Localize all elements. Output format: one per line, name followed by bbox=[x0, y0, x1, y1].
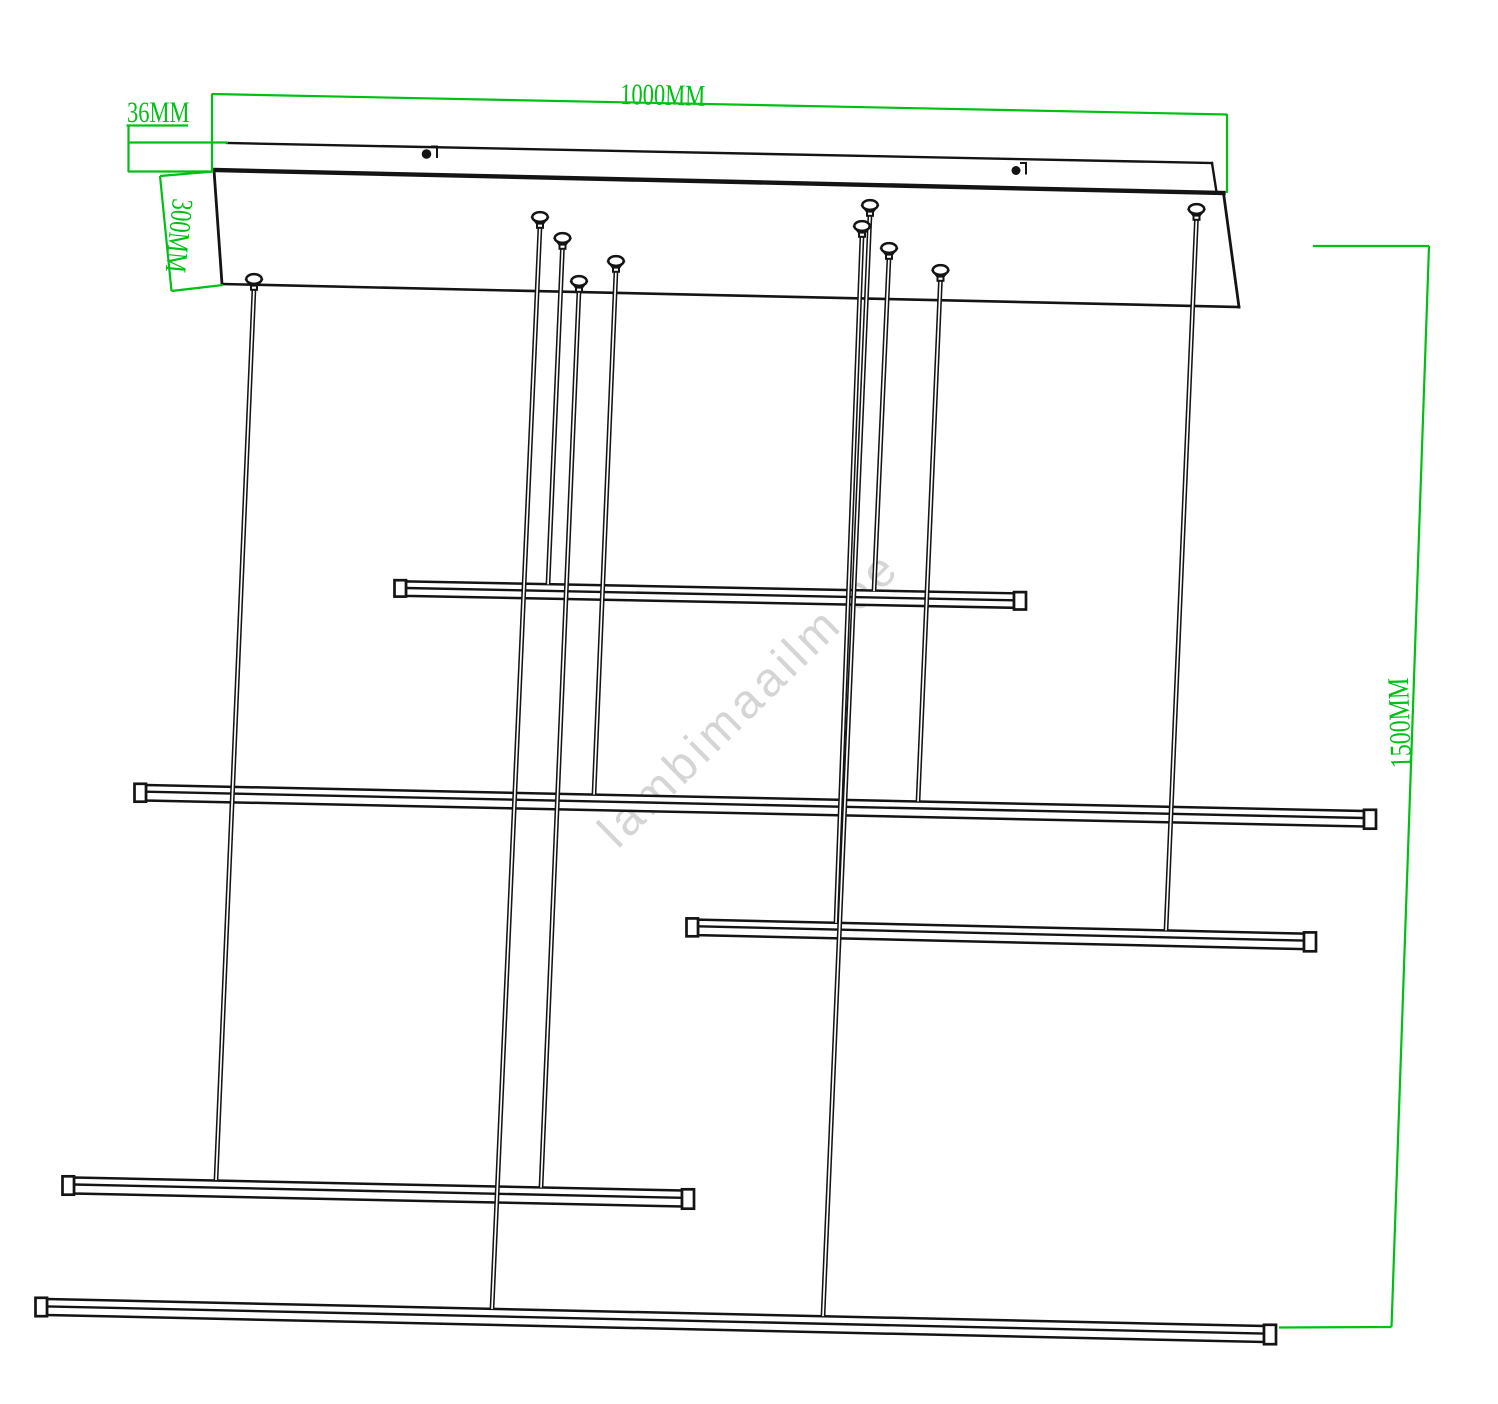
svg-text:1500MM: 1500MM bbox=[1381, 677, 1417, 769]
svg-text:36MM: 36MM bbox=[127, 95, 189, 129]
svg-text:1000MM: 1000MM bbox=[620, 77, 706, 113]
